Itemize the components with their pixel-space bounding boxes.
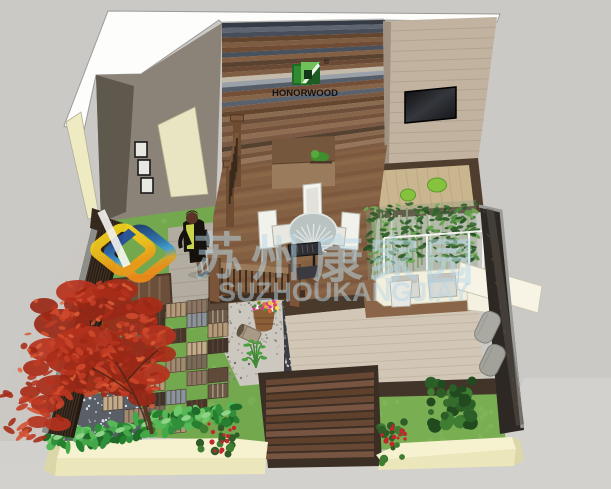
svg-text:HONORWOOD: HONORWOOD: [272, 88, 339, 98]
svg-text:®: ®: [324, 58, 330, 66]
svg-text:SUZHOUKANGJIAY: SUZHOUKANGJIAY: [218, 277, 470, 307]
